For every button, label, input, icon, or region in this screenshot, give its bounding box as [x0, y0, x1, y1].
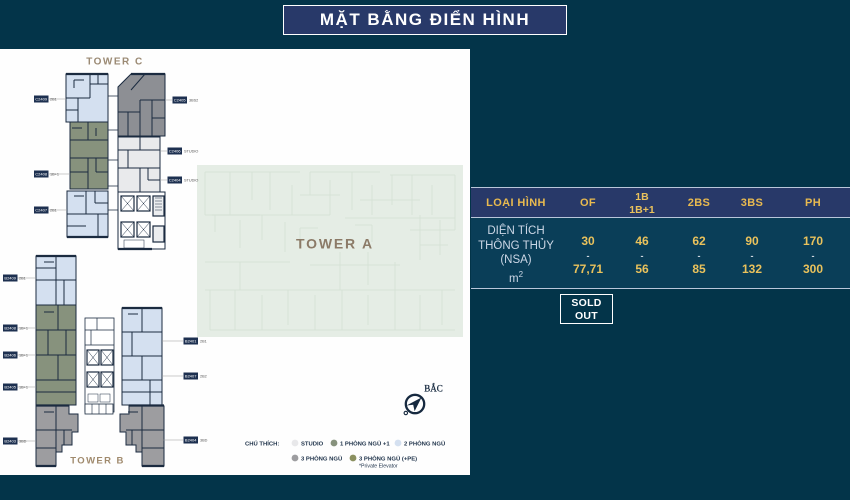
svg-text:C2408: C2408 — [35, 172, 48, 177]
svg-text:2B1: 2B1 — [200, 340, 207, 344]
svg-text:TOWER B: TOWER B — [70, 456, 124, 467]
svg-text:2B2: 2B2 — [200, 375, 207, 379]
svg-text:B2409: B2409 — [4, 276, 16, 281]
svg-text:B2405: B2405 — [4, 385, 16, 390]
svg-text:C2407: C2407 — [35, 208, 48, 213]
svg-text:2B1: 2B1 — [50, 209, 57, 213]
svg-text:TOWER A: TOWER A — [296, 236, 374, 252]
svg-text:2 PHÒNG NGỦ: 2 PHÒNG NGỦ — [404, 440, 445, 448]
svg-text:STUDIO: STUDIO — [184, 150, 198, 154]
svg-text:1B+1: 1B+1 — [19, 386, 28, 390]
svg-text:C2406: C2406 — [169, 149, 182, 154]
svg-text:B2406: B2406 — [4, 353, 16, 358]
svg-text:STUDIO: STUDIO — [301, 442, 324, 448]
svg-text:3 PHÒNG NGỦ (+PE): 3 PHÒNG NGỦ (+PE) — [359, 455, 417, 463]
svg-text:CHÚ THÍCH:: CHÚ THÍCH: — [245, 440, 279, 448]
svg-text:B2408: B2408 — [4, 326, 16, 331]
svg-text:1B+1: 1B+1 — [19, 327, 28, 331]
svg-text:B2404: B2404 — [185, 438, 197, 443]
svg-text:C2404: C2404 — [169, 178, 182, 183]
svg-text:BẮC: BẮC — [424, 384, 443, 394]
svg-text:C2405: C2405 — [174, 98, 187, 103]
svg-text:2B1: 2B1 — [19, 277, 26, 281]
svg-text:1 PHÒNG NGỦ +1: 1 PHÒNG NGỦ +1 — [340, 440, 390, 448]
svg-text:3BD: 3BD — [200, 439, 208, 443]
svg-text:3BD: 3BD — [19, 440, 27, 444]
svg-text:B2401: B2401 — [185, 339, 197, 344]
svg-text:STUDIO: STUDIO — [184, 179, 198, 183]
svg-text:1B+1: 1B+1 — [50, 173, 59, 177]
svg-text:*Private Elevator: *Private Elevator — [359, 464, 398, 470]
svg-text:2B1: 2B1 — [50, 98, 57, 102]
svg-text:TOWER C: TOWER C — [86, 57, 144, 68]
svg-text:B2403: B2403 — [4, 439, 16, 444]
svg-text:C2409: C2409 — [35, 97, 48, 102]
svg-text:3 PHÒNG NGỦ: 3 PHÒNG NGỦ — [301, 455, 342, 463]
svg-text:3BS2: 3BS2 — [189, 99, 198, 103]
svg-text:B2407: B2407 — [185, 374, 197, 379]
svg-text:1B+1: 1B+1 — [19, 354, 28, 358]
